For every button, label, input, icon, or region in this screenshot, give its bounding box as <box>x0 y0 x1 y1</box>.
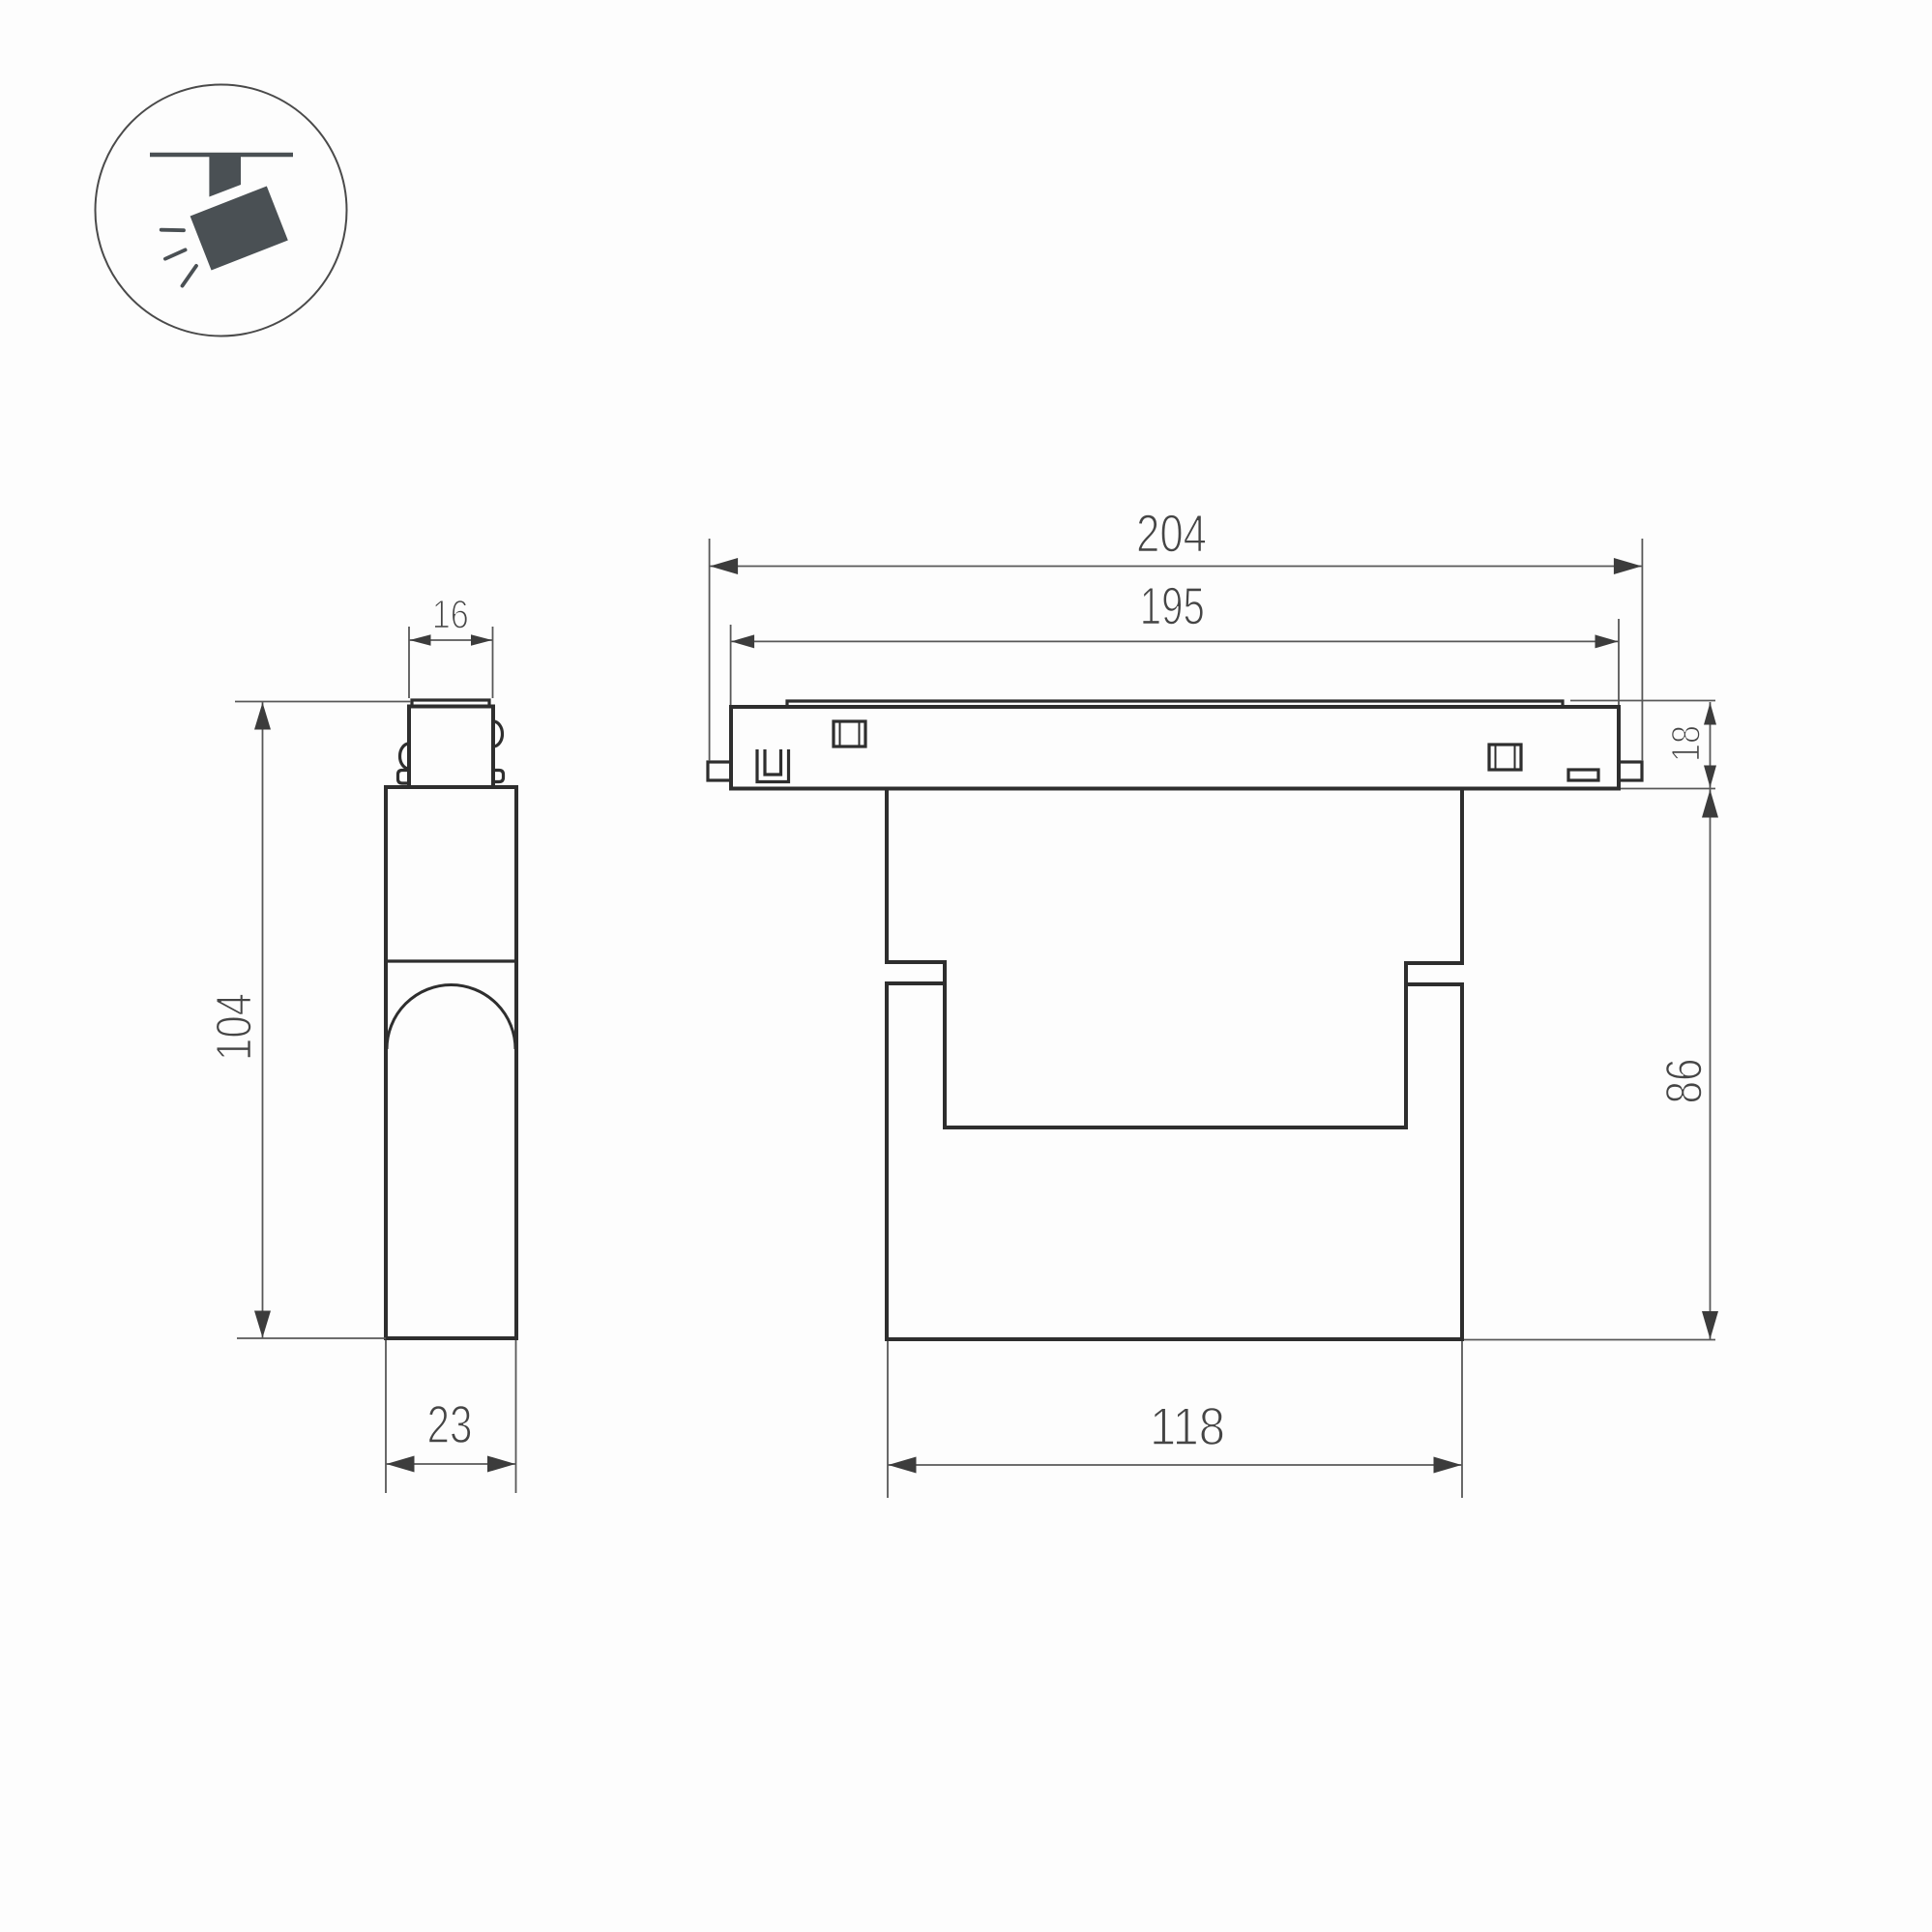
svg-text:118: 118 <box>1150 1397 1225 1456</box>
svg-text:204: 204 <box>1136 504 1207 563</box>
svg-text:18: 18 <box>1662 725 1708 762</box>
svg-text:195: 195 <box>1140 577 1205 636</box>
svg-text:86: 86 <box>1655 1059 1712 1104</box>
svg-text:23: 23 <box>427 1394 473 1454</box>
svg-text:16: 16 <box>432 591 469 636</box>
svg-text:104: 104 <box>205 993 261 1061</box>
